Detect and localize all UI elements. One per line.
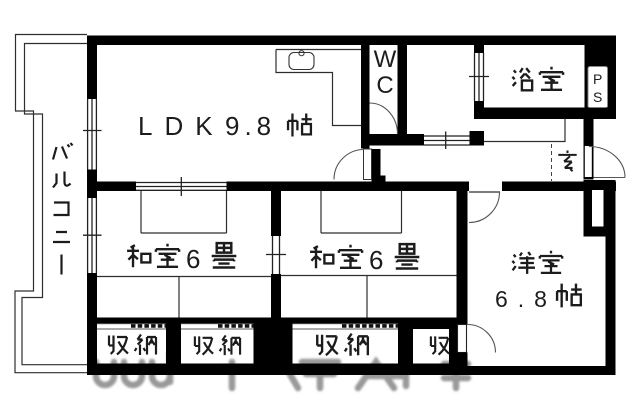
svg-text:W: W: [374, 46, 397, 73]
svg-text:P: P: [593, 71, 602, 87]
svg-text:S: S: [593, 89, 602, 105]
svg-text:6.8: 6.8: [495, 286, 557, 312]
svg-text:C: C: [376, 72, 393, 99]
svg-text:LDK: LDK: [138, 111, 225, 141]
svg-text:6: 6: [369, 245, 383, 275]
svg-text:6: 6: [186, 244, 200, 274]
svg-text:9.8: 9.8: [225, 111, 276, 141]
